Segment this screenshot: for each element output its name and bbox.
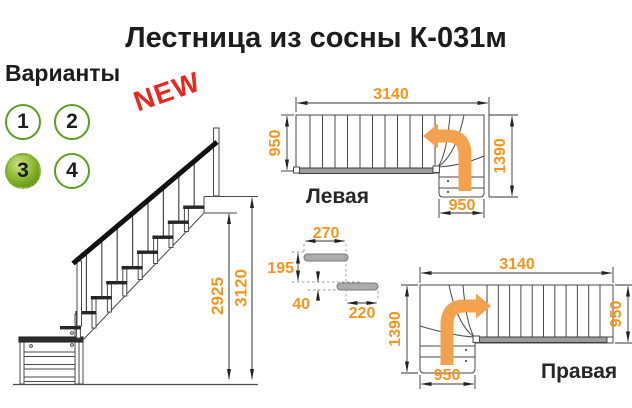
dim-floor-height: 2925 — [208, 277, 227, 315]
dim-detail-thickness: 40 — [292, 296, 310, 313]
plan-left-treads — [310, 115, 435, 168]
dim-left-turn: 1390 — [492, 138, 509, 174]
detail-dimensions — [298, 241, 377, 303]
dim-left-landing: 950 — [449, 197, 476, 214]
dim-left-width: 950 — [267, 130, 284, 157]
dim-detail-tread-depth: 270 — [313, 225, 340, 242]
staircase-drawing: 2925 3120 — [0, 0, 632, 408]
plan-right-treads — [487, 285, 600, 338]
dim-left-length: 3140 — [373, 86, 409, 103]
turn-arrow-left — [423, 124, 465, 192]
top-rail-post — [214, 128, 220, 196]
top-floor — [204, 197, 258, 214]
detail-tread-lower — [337, 283, 378, 290]
plan-view-left: 3140 950 1390 950 Левая — [267, 86, 518, 218]
dim-right-width: 950 — [608, 301, 625, 328]
plan-right-label: Правая — [541, 360, 617, 383]
diagram-canvas: Лестница из сосны К-031м Варианты NEW 1 … — [0, 0, 632, 408]
side-view-staircase: 2925 3120 — [13, 128, 258, 385]
bottom-platform — [19, 314, 83, 384]
plan-left-stringer — [299, 168, 433, 174]
dim-right-turn: 1390 — [387, 311, 404, 347]
plan-view-right: 3140 1390 950 950 Правая — [387, 256, 632, 389]
dim-right-length: 3140 — [499, 256, 535, 273]
detail-tread-upper — [304, 254, 348, 261]
stringer-line — [82, 213, 204, 341]
turn-arrow-right — [447, 294, 491, 366]
handrail — [73, 142, 217, 264]
step-profile-detail: 270 195 40 220 — [267, 225, 378, 322]
dim-detail-going: 220 — [349, 305, 376, 322]
dim-right-landing: 950 — [434, 367, 461, 384]
detail-extension-lines — [292, 244, 378, 301]
plan-right-stringer — [479, 337, 608, 343]
bottom-rail-post — [77, 261, 82, 326]
dim-total-height: 3120 — [232, 269, 251, 307]
plan-left-label: Левая — [306, 185, 369, 208]
dim-detail-riser: 195 — [267, 260, 294, 277]
